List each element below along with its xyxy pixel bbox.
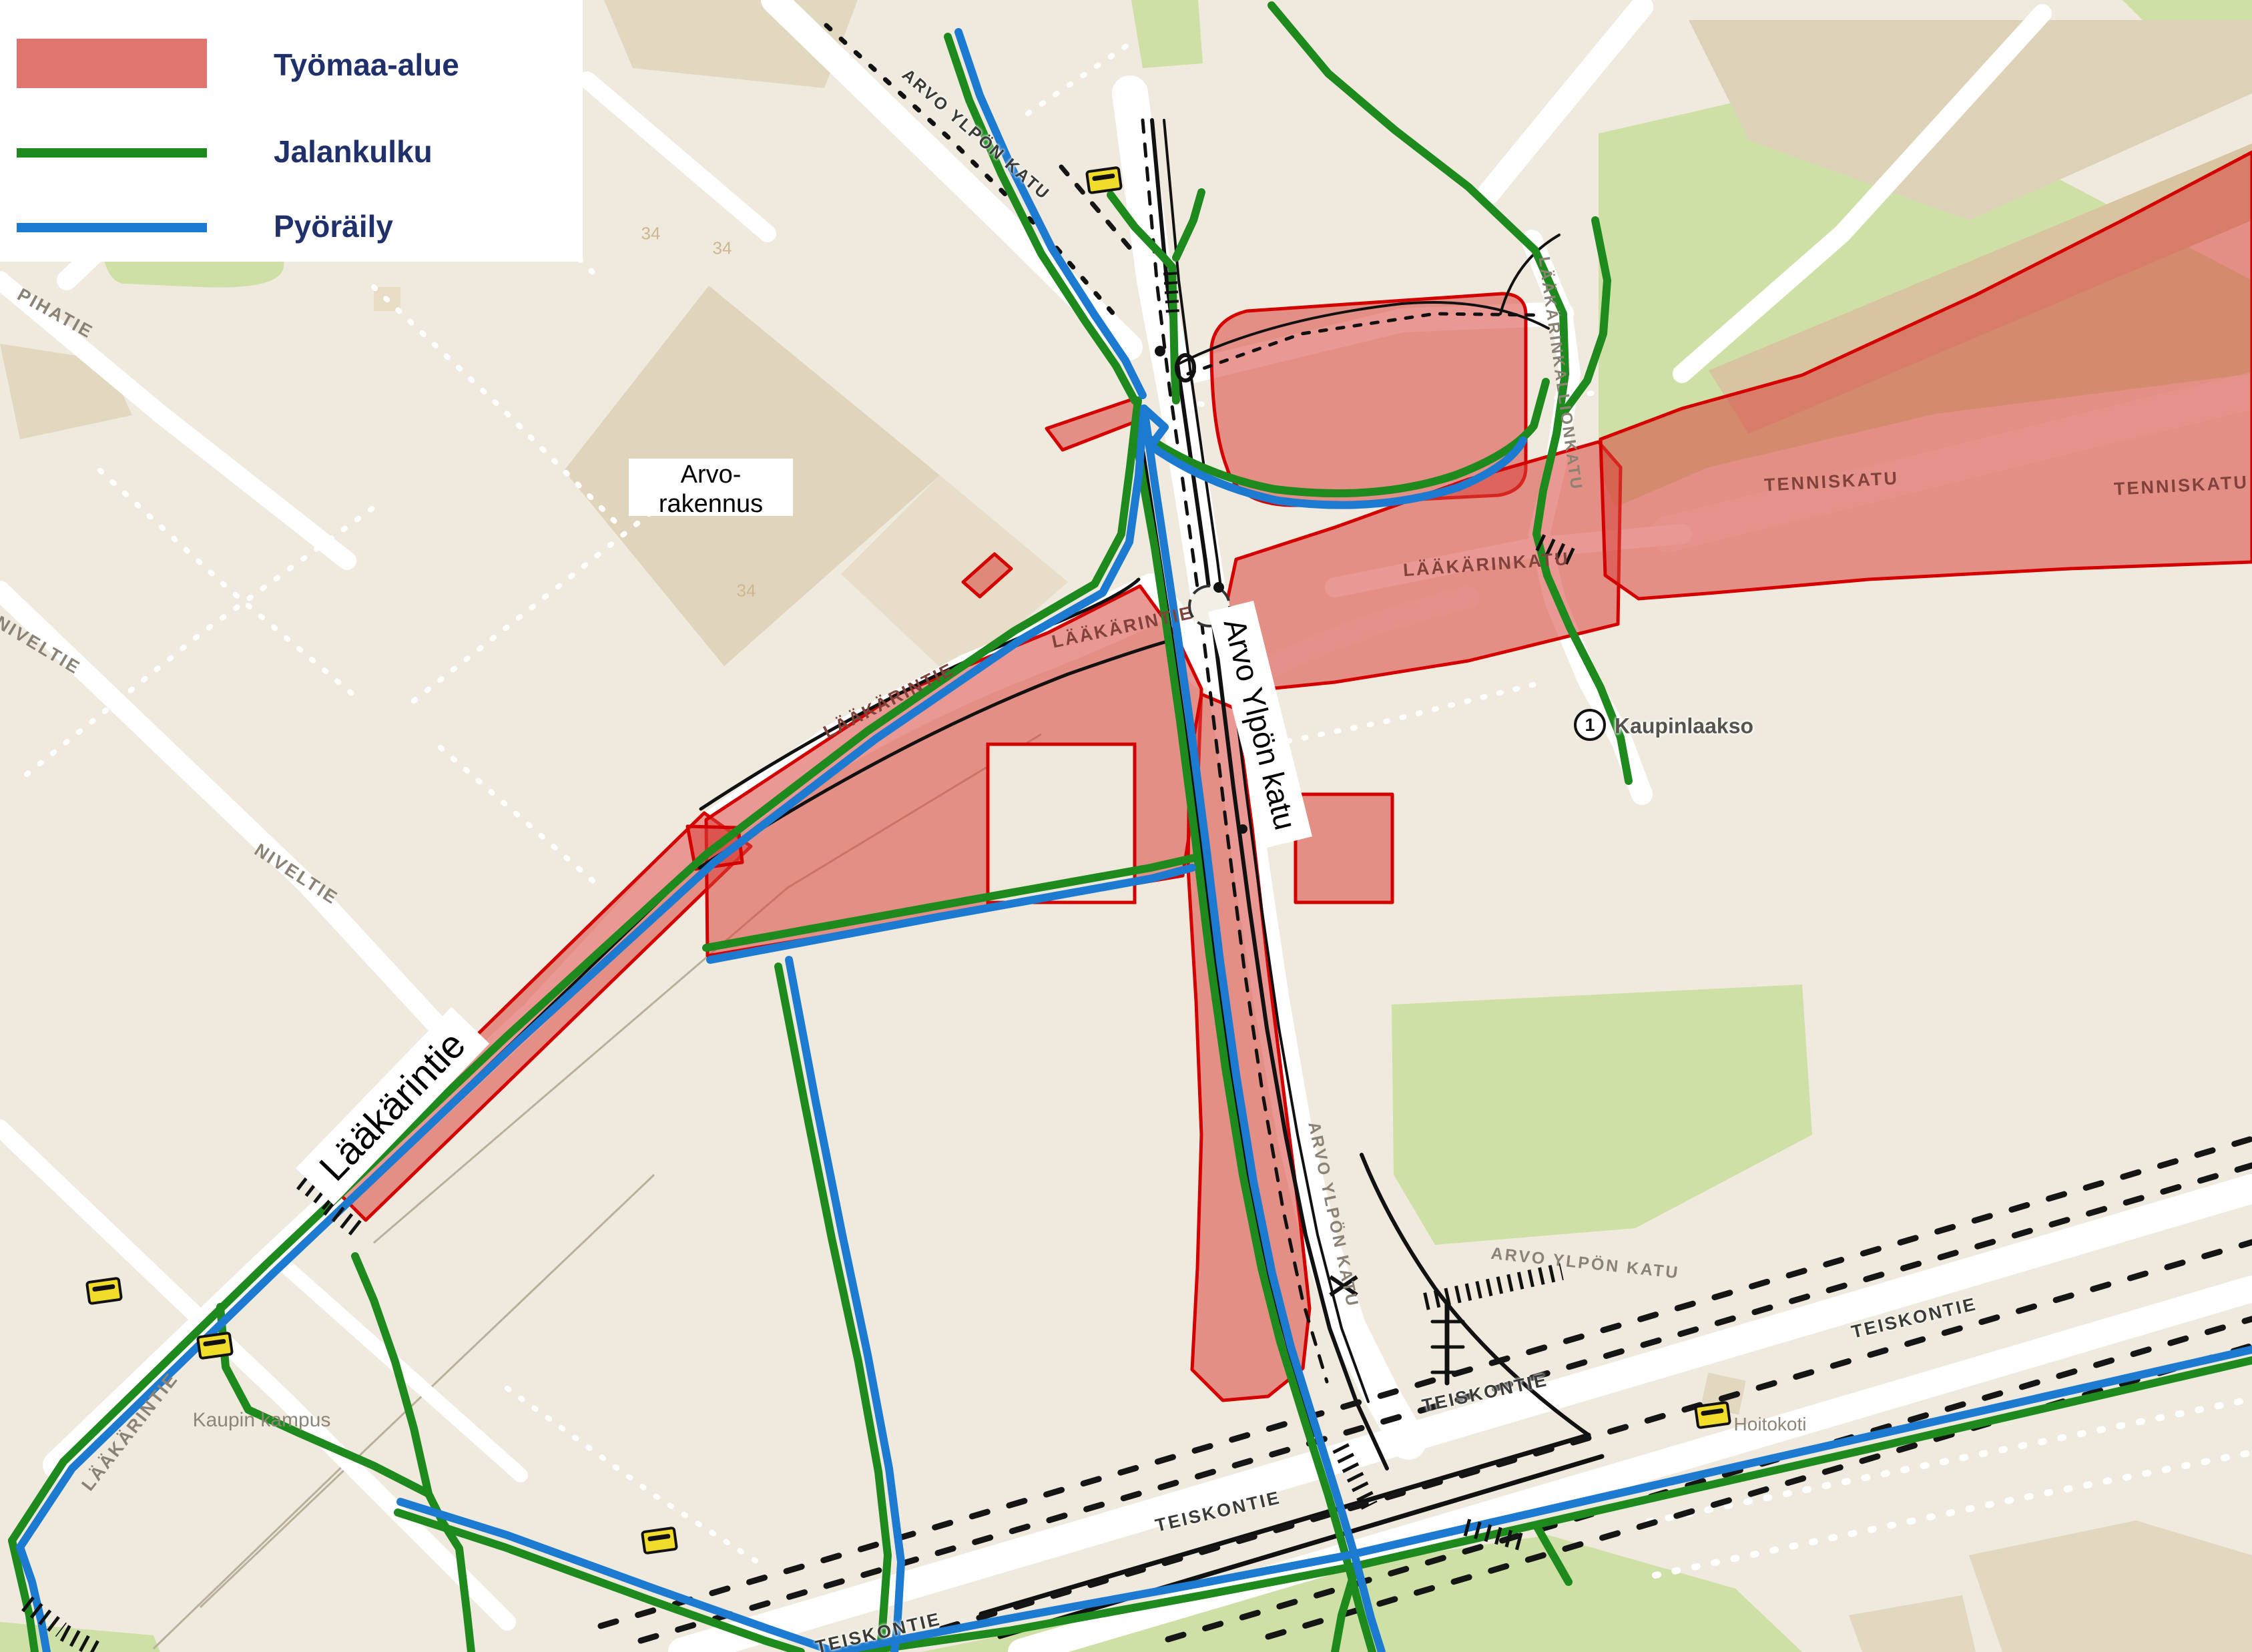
building-number: 34 bbox=[713, 238, 732, 259]
construction-area-swatch bbox=[17, 39, 207, 88]
traffic-signal-icon bbox=[1155, 346, 1165, 356]
place-label-kaupinlaakso: Kaupinlaakso bbox=[1615, 714, 1753, 739]
building-number: 34 bbox=[737, 581, 756, 601]
legend-row-pedestrian: Jalankulku bbox=[17, 131, 564, 171]
place-label-hoitokoti: Hoitokoti bbox=[1734, 1414, 1807, 1435]
traffic-signal-icon bbox=[1213, 582, 1224, 593]
pedestrian-line-swatch bbox=[17, 148, 207, 158]
bus-stop-icon[interactable] bbox=[85, 1277, 123, 1306]
arvo-rakennus-line2: rakennus bbox=[634, 489, 788, 519]
traffic-signal-icon bbox=[1238, 824, 1247, 834]
place-label-kaupin-kampus: Kaupin kampus bbox=[193, 1409, 331, 1432]
construction-area-rect bbox=[1296, 794, 1392, 902]
cycling-line-swatch bbox=[17, 223, 207, 232]
legend-row-construction: Työmaa-alue bbox=[17, 39, 564, 91]
map-screenshot: PIHATIE NIVELTIE NIVELTIE Lääkärintie LÄ… bbox=[0, 0, 2252, 1652]
bus-stop-icon[interactable] bbox=[1694, 1401, 1732, 1430]
legend-label-cycling: Pyöräily bbox=[274, 208, 393, 244]
building-number: 34 bbox=[641, 224, 661, 244]
legend-label-pedestrian: Jalankulku bbox=[274, 133, 433, 170]
legend: Työmaa-alue Jalankulku Pyöräily bbox=[0, 0, 583, 262]
construction-notch bbox=[988, 744, 1135, 902]
legend-label-construction: Työmaa-alue bbox=[274, 47, 459, 83]
bus-stop-icon[interactable] bbox=[1085, 166, 1123, 195]
arvo-rakennus-line1: Arvo- bbox=[634, 460, 788, 489]
legend-row-cycling: Pyöräily bbox=[17, 206, 564, 246]
bus-stop-icon[interactable] bbox=[641, 1527, 679, 1555]
map-marker-1[interactable]: 1 bbox=[1574, 709, 1606, 741]
bus-stop-icon[interactable] bbox=[196, 1332, 234, 1360]
building-label-arvo-rakennus: Arvo- rakennus bbox=[629, 459, 793, 516]
